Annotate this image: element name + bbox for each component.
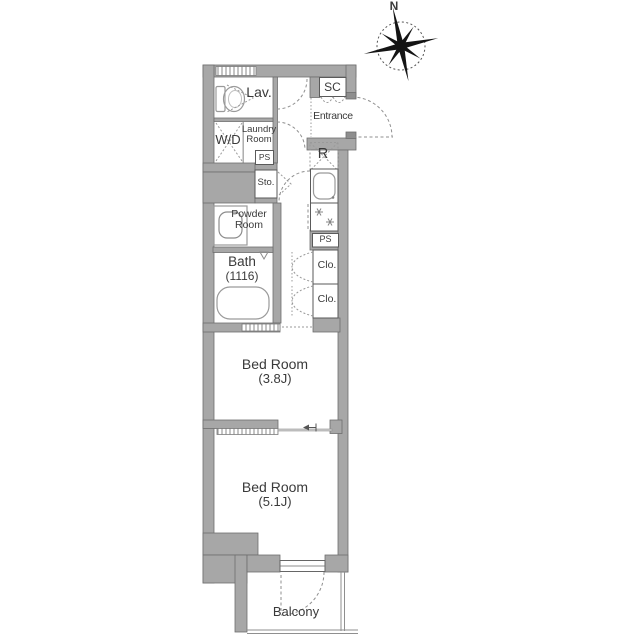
balcony-railing: [247, 572, 358, 634]
room-label-bath: Bath (1116): [212, 255, 272, 283]
laundry-door-arc: [277, 122, 305, 150]
balcony-window: [280, 561, 325, 572]
room-label-storage: Sto.: [255, 178, 277, 188]
stove-icon: [311, 203, 339, 231]
room-label-closet-lower: Clo.: [307, 294, 347, 305]
bathtub-icon: [217, 287, 269, 319]
room-label-entrance: Entrance: [303, 111, 363, 122]
bedroom1-wall-vent: [242, 324, 280, 331]
room-label-laundry: Laundry Room: [241, 125, 277, 146]
room-label-bedroom-upper: Bed Room (3.8J): [215, 357, 335, 386]
lav-window: [216, 67, 256, 76]
room-label-bedroom-lower: Bed Room (5.1J): [215, 480, 335, 509]
floor-plan-drawing: [0, 0, 640, 640]
room-label-powder: Powder Room: [219, 209, 279, 232]
shoe-closet-doors: [321, 97, 345, 103]
bedroom-sliding-door: [278, 424, 332, 432]
kitchen-door-arc: [279, 171, 310, 202]
compass-north-label: N: [384, 0, 404, 13]
room-label-balcony: Balcony: [256, 605, 336, 619]
label-ps-top: PS: [255, 153, 274, 162]
compass-icon: [356, 0, 446, 89]
partition-hatch: [217, 429, 278, 435]
room-label-closet-upper: Clo.: [307, 260, 347, 271]
label-sc: SC: [319, 81, 346, 94]
room-label-lav: Lav.: [219, 85, 299, 100]
entrance-door-hinge-top: [346, 93, 356, 100]
floor-plan-canvas: N Lav. W/D Laundry Room PS SC Entrance R…: [0, 0, 640, 640]
kitchen-sink-icon: [311, 169, 339, 203]
label-refrigerator: R: [303, 147, 343, 163]
label-ps-kitchen: PS: [313, 235, 338, 245]
entrance-door-hinge-bottom: [346, 132, 356, 139]
